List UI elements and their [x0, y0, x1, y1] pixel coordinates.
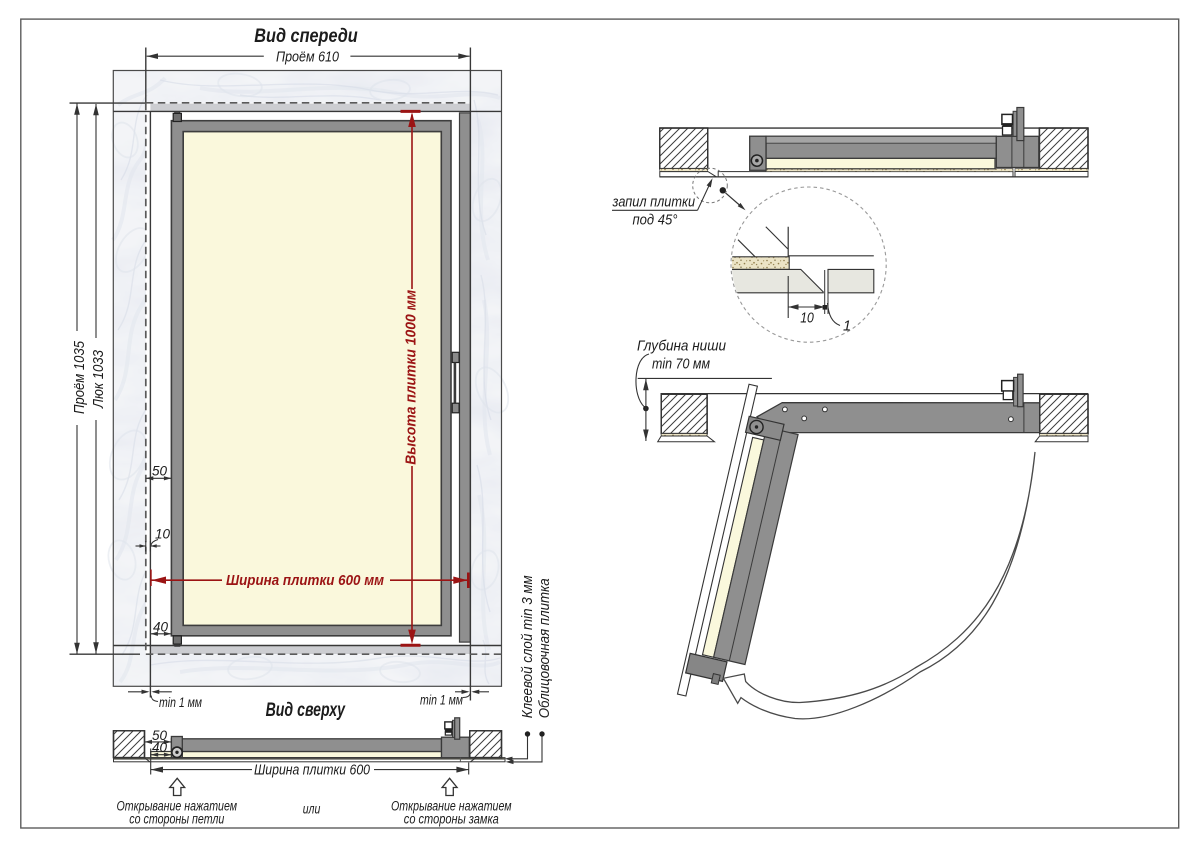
- svg-text:со стороны замка: со стороны замка: [404, 812, 499, 827]
- svg-text:Люк 1033: Люк 1033: [91, 350, 107, 409]
- svg-text:Проём 610: Проём 610: [276, 50, 339, 66]
- svg-text:со стороны петли: со стороны петли: [129, 812, 224, 827]
- svg-text:min 70 мм: min 70 мм: [652, 357, 710, 373]
- svg-text:1: 1: [843, 319, 851, 335]
- svg-text:запил плитки: запил плитки: [612, 195, 695, 211]
- svg-text:Ширина плитки 600: Ширина плитки 600: [254, 763, 370, 779]
- svg-text:Высота плитки 1000 мм: Высота плитки 1000 мм: [404, 290, 420, 465]
- svg-text:Вид сверху: Вид сверху: [266, 700, 346, 721]
- svg-text:Глубина ниши: Глубина ниши: [637, 339, 726, 355]
- svg-text:Проём 1035: Проём 1035: [72, 340, 88, 414]
- svg-text:Ширина плитки 600 мм: Ширина плитки 600 мм: [226, 573, 384, 589]
- svg-text:50: 50: [152, 464, 168, 479]
- svg-text:Вид спереди: Вид спереди: [254, 26, 358, 47]
- svg-text:40: 40: [152, 740, 168, 755]
- svg-text:под 45°: под 45°: [633, 213, 678, 229]
- svg-text:min 1 мм: min 1 мм: [420, 693, 463, 708]
- svg-text:10: 10: [800, 311, 814, 327]
- svg-text:Облицовочная плитка: Облицовочная плитка: [537, 578, 553, 718]
- svg-text:или: или: [303, 802, 321, 817]
- svg-text:Клеевой слой min 3 мм: Клеевой слой min 3 мм: [520, 575, 536, 718]
- svg-text:min 1 мм: min 1 мм: [159, 695, 202, 710]
